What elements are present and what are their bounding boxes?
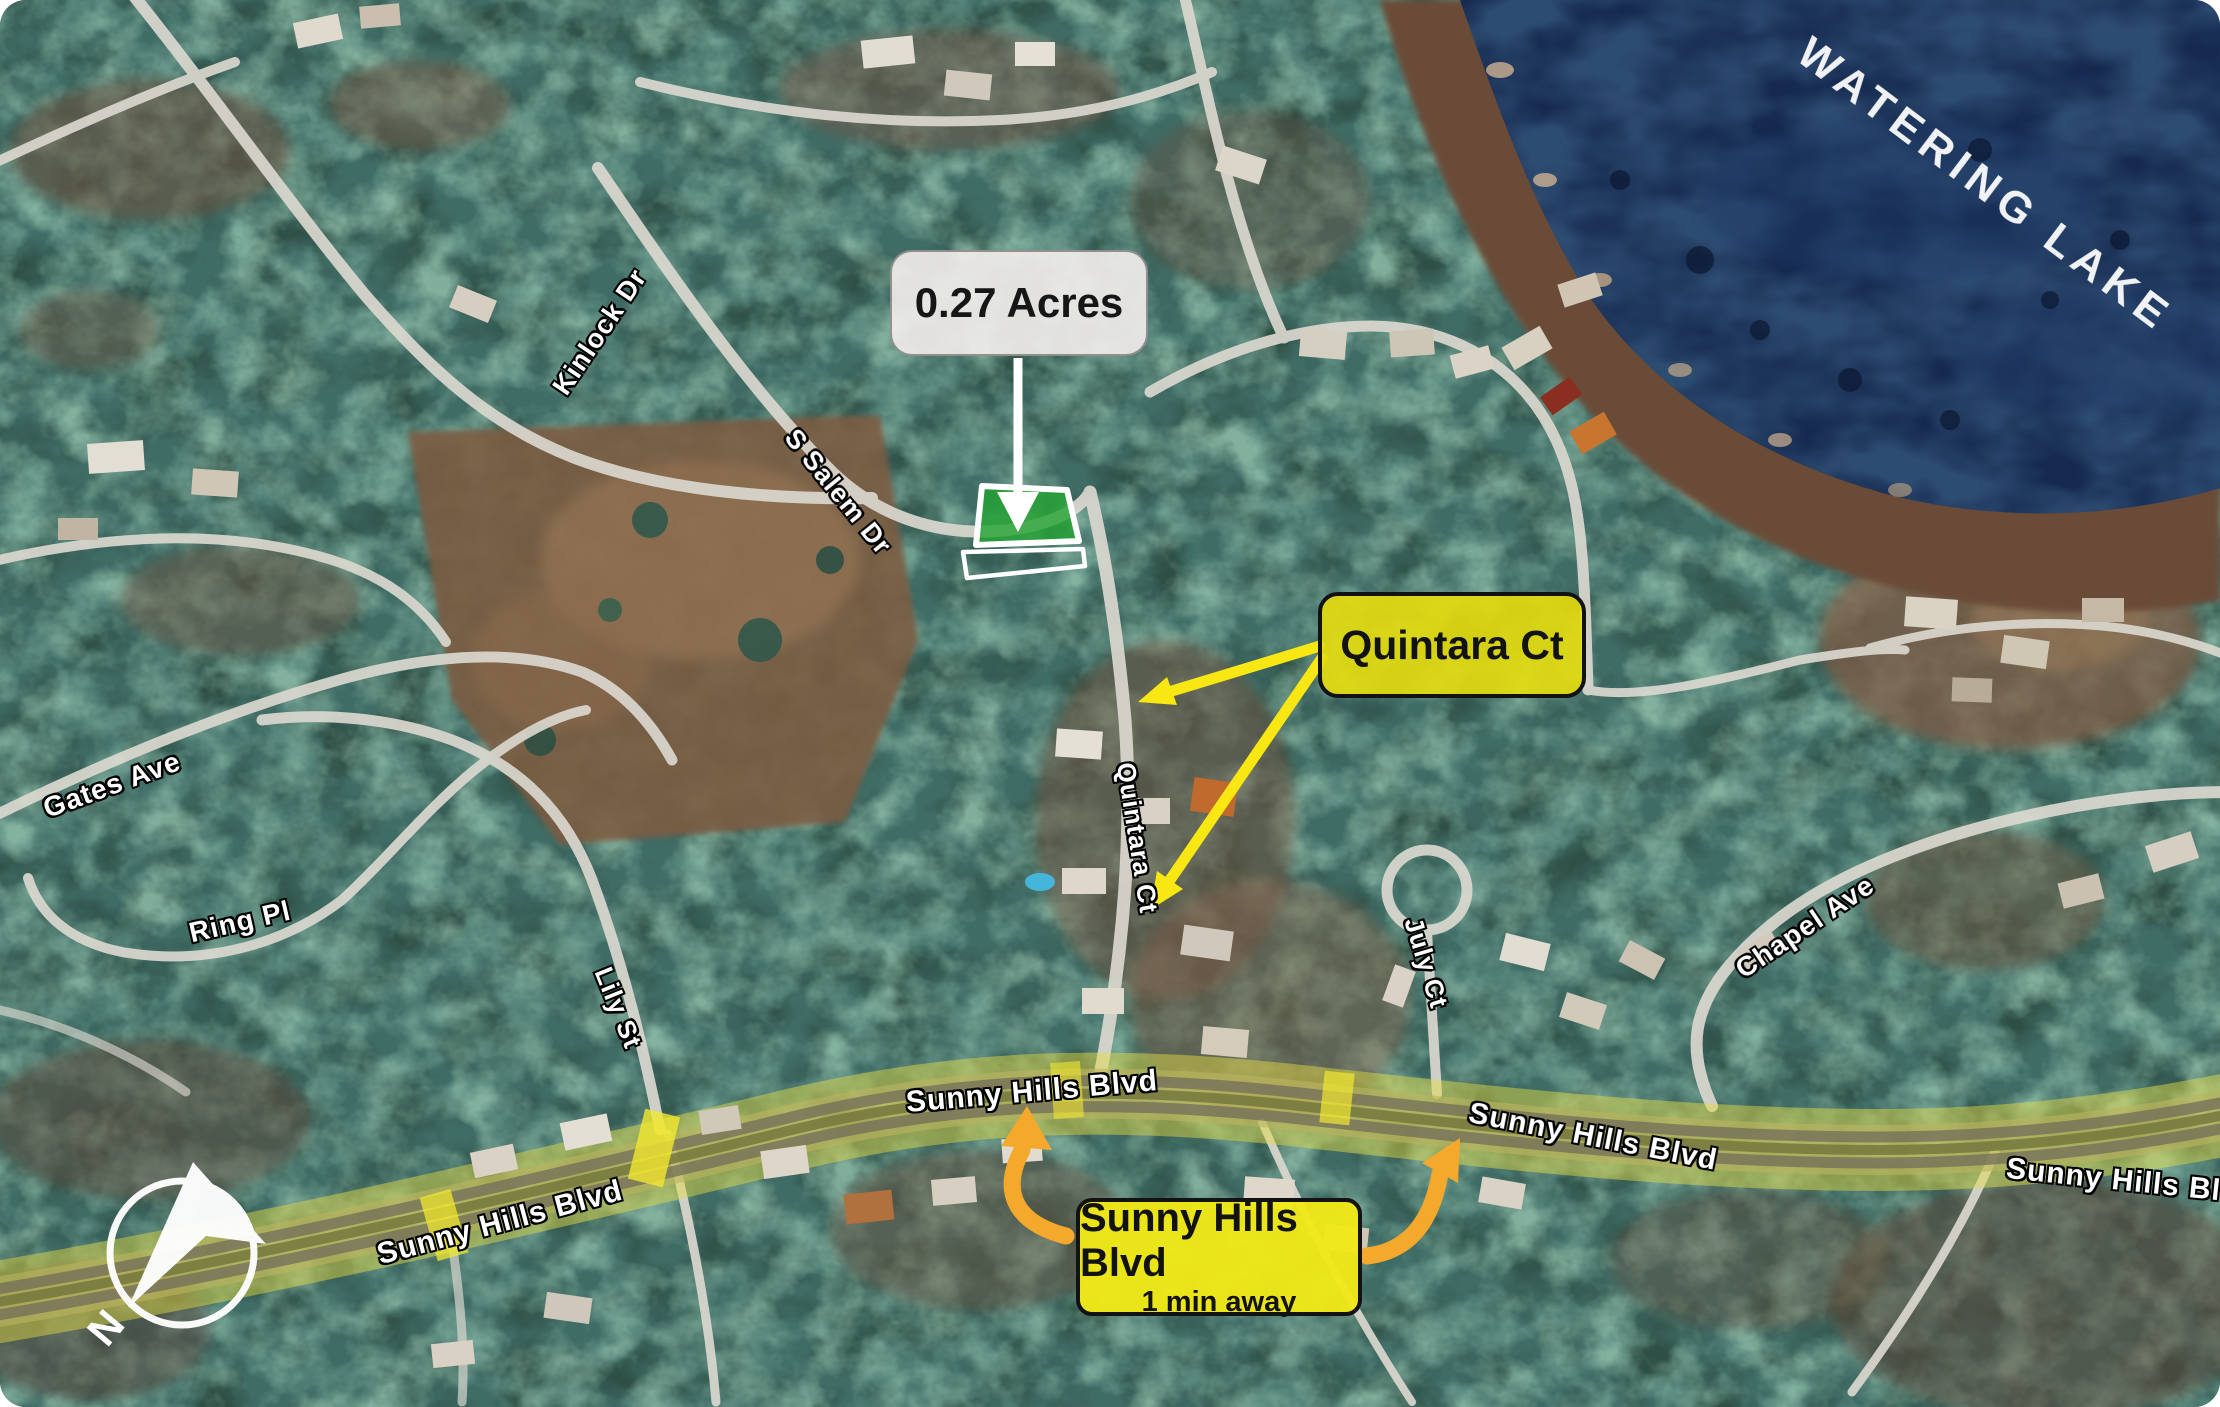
quintara-ct-text: Quintara Ct xyxy=(1340,622,1563,669)
sunny-hills-blvd-callout: Sunny Hills Blvd 1 min away xyxy=(1076,1198,1362,1316)
parcel-area-text: 0.27 Acres xyxy=(915,279,1124,327)
parcel-area-callout: 0.27 Acres xyxy=(890,250,1148,356)
swimming-pool xyxy=(1025,873,1055,891)
route-time-text: 1 min away xyxy=(1142,1286,1297,1318)
quintara-ct-callout: Quintara Ct xyxy=(1318,592,1586,698)
route-name-text: Sunny Hills Blvd xyxy=(1080,1196,1358,1286)
aerial-map: Kinlock Dr S Salem Dr Gates Ave Ring Pl … xyxy=(0,0,2220,1407)
